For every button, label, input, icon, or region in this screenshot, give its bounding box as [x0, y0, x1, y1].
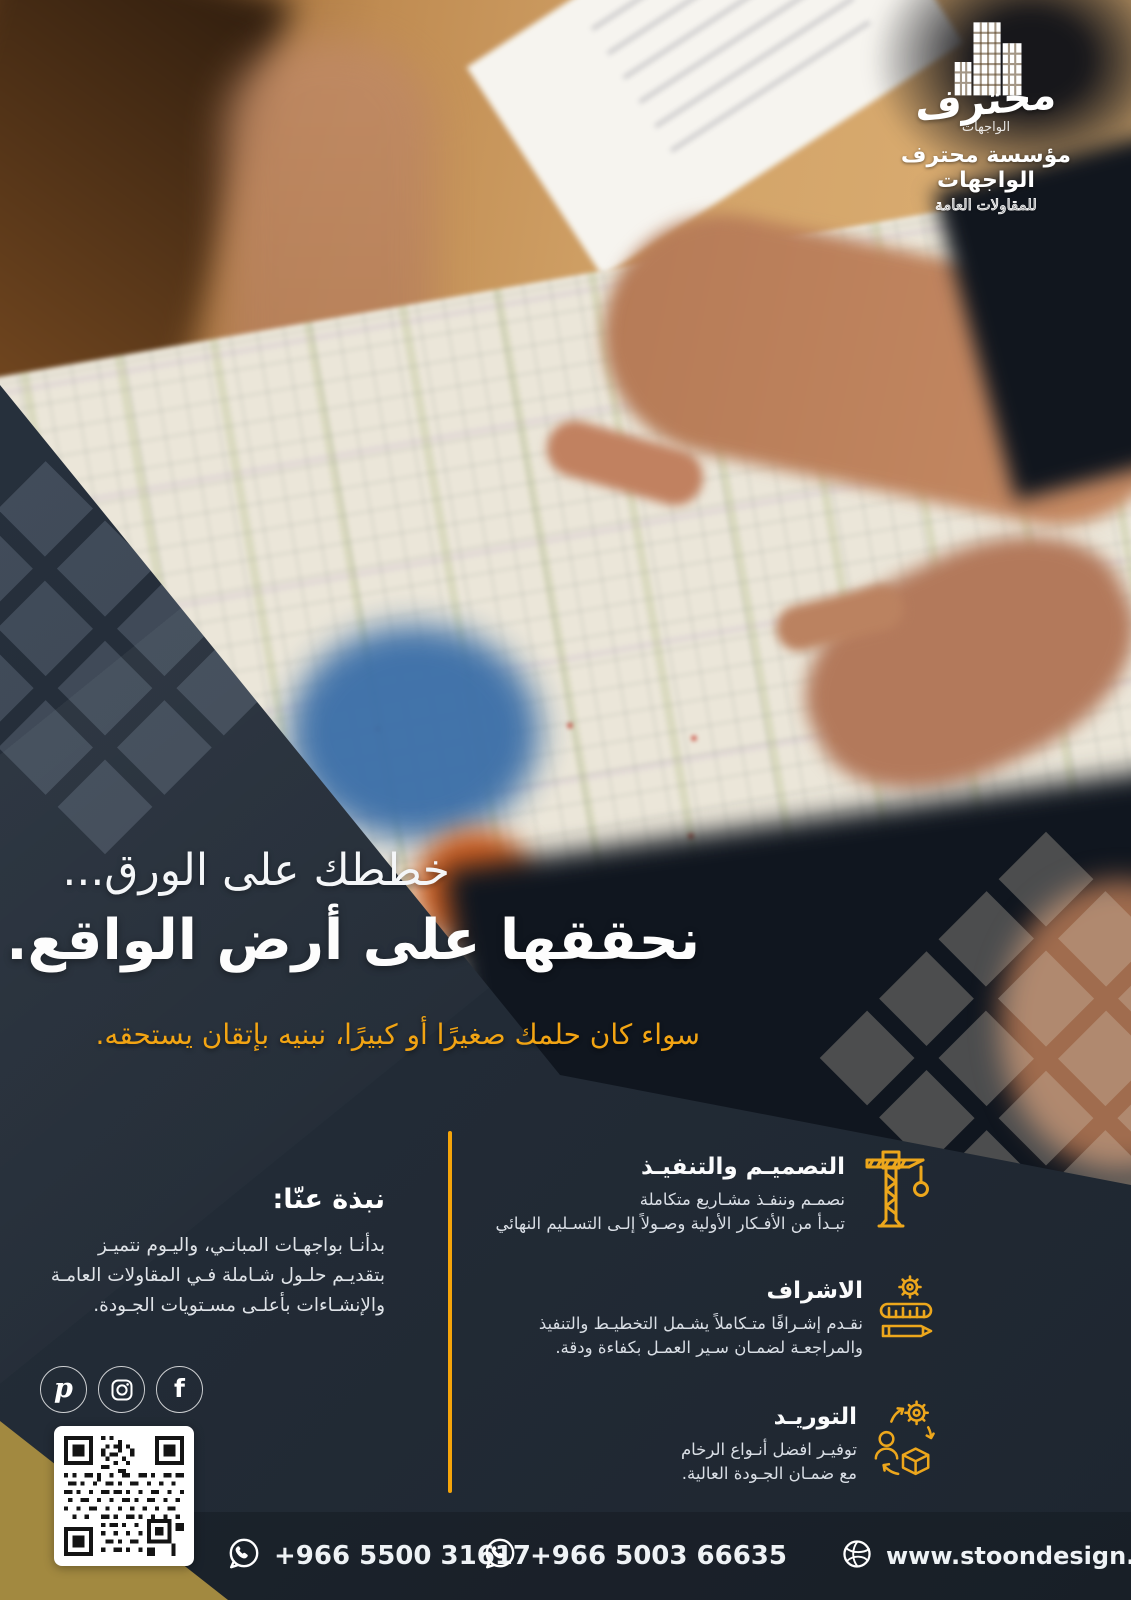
about-section: نبذة عنّا: بدأنـا بواجهـات المبانـي، وال… [33, 1184, 385, 1321]
pinterest-icon[interactable]: p [40, 1366, 87, 1413]
service-title: الاشراف [539, 1278, 863, 1304]
brand-name: مؤسسة محترف الواجهات [867, 143, 1105, 193]
service-description: توفيـر افضل أنـواع الرخام مع ضمـان الجـو… [681, 1438, 857, 1486]
service-supply: التوريـد توفيـر افضل أنـواع الرخام مع ضم… [681, 1398, 935, 1486]
logo-subtext: الواجهات [867, 120, 1105, 135]
headline-line2: نحققها على أرض الواقع. [6, 908, 700, 973]
website-url: www.stoondesign.com [886, 1542, 1131, 1570]
phone-contact-2[interactable]: +966 5003 66635 [480, 1534, 787, 1578]
company-logo: محترف الواجهات مؤسسة محترف الواجهات للمق… [867, 20, 1105, 214]
headline-line1: خططك على الورق... [62, 845, 450, 896]
service-title: التوريـد [681, 1404, 857, 1430]
website-contact[interactable]: www.stoondesign.com [838, 1534, 1131, 1578]
service-design-execution: التصميـم والتنفيـذ نصمـم وننفـذ مشـاريع … [496, 1140, 935, 1236]
about-body: بدأنـا بواجهـات المبانـي، واليـوم نتميـز… [33, 1231, 385, 1321]
social-links: p f [40, 1366, 203, 1413]
whatsapp-icon [480, 1534, 520, 1578]
service-description: نصمـم وننفـذ مشـاريع متكاملة تبـدأ من ال… [496, 1188, 845, 1236]
poster-root: محترف الواجهات مؤسسة محترف الواجهات للمق… [0, 0, 1131, 1600]
service-title: التصميـم والتنفيـذ [496, 1154, 845, 1180]
service-supervision: الاشراف نقـدم إشـرافًا متـكاملاً يشـمل ا… [539, 1274, 935, 1360]
qr-code [54, 1426, 194, 1566]
crane-icon [859, 1140, 935, 1236]
whatsapp-icon [224, 1534, 264, 1578]
brand-tagline: للمقاولات العامة [867, 196, 1105, 214]
facebook-icon[interactable]: f [156, 1366, 203, 1413]
service-description: نقـدم إشـرافًا متـكاملاً يشـمل التخطيـط … [539, 1312, 863, 1360]
instagram-icon[interactable] [98, 1366, 145, 1413]
phone-number-2: +966 5003 66635 [530, 1541, 787, 1571]
section-divider [448, 1131, 452, 1493]
hero-subtitle: سواء كان حلمك صغيرًا أو كبيرًا، نبنيه بإ… [95, 1018, 700, 1051]
about-heading: نبذة عنّا: [33, 1184, 385, 1215]
supply-icon [871, 1398, 935, 1486]
supervision-icon [877, 1274, 935, 1360]
globe-icon [838, 1535, 876, 1577]
